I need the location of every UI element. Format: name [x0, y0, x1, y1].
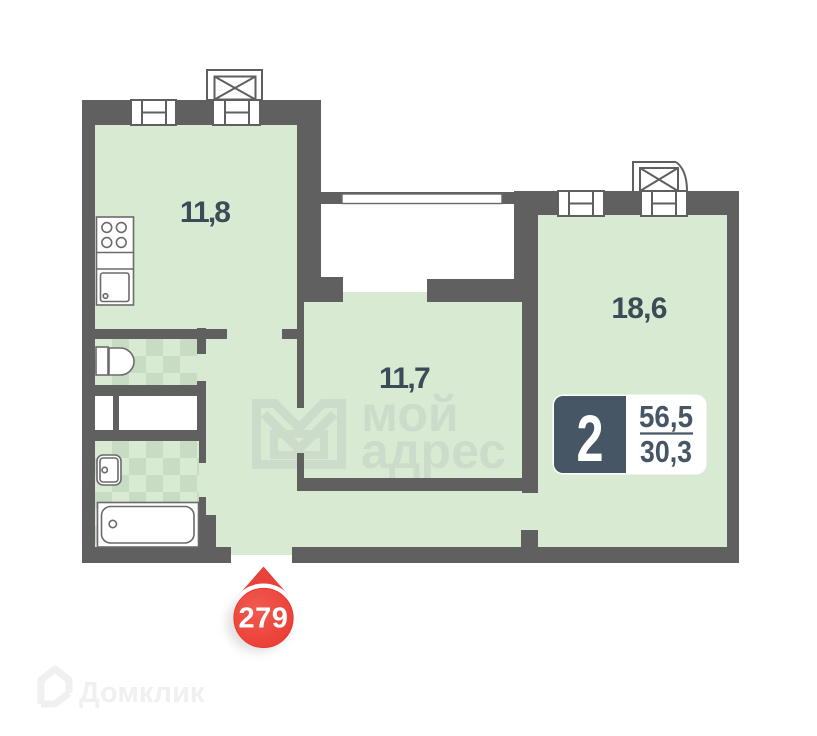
- svg-text:2: 2: [577, 401, 604, 475]
- svg-text:18,6: 18,6: [611, 292, 666, 325]
- svg-text:11,8: 11,8: [180, 196, 230, 229]
- svg-text:56,5: 56,5: [639, 399, 693, 434]
- svg-text:279: 279: [239, 603, 289, 635]
- svg-text:30,3: 30,3: [640, 434, 692, 469]
- svg-text:Домклик: Домклик: [79, 677, 205, 709]
- svg-text:11,7: 11,7: [379, 362, 430, 395]
- svg-text:адрес: адрес: [361, 423, 506, 479]
